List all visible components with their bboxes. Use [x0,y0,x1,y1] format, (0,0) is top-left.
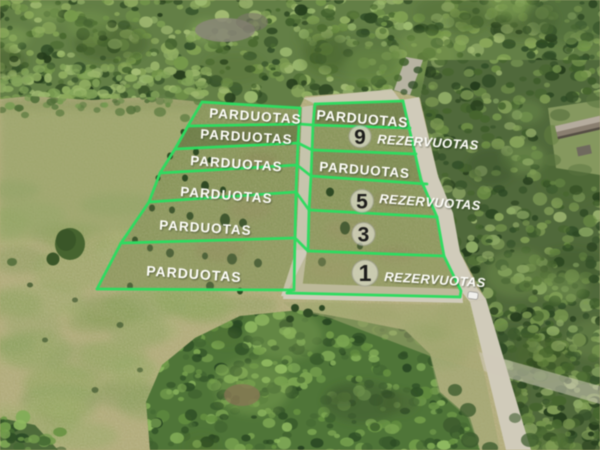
svg-text:9: 9 [354,126,366,149]
svg-text:5: 5 [356,191,368,214]
svg-text:1: 1 [359,260,372,286]
svg-text:3: 3 [358,224,370,247]
